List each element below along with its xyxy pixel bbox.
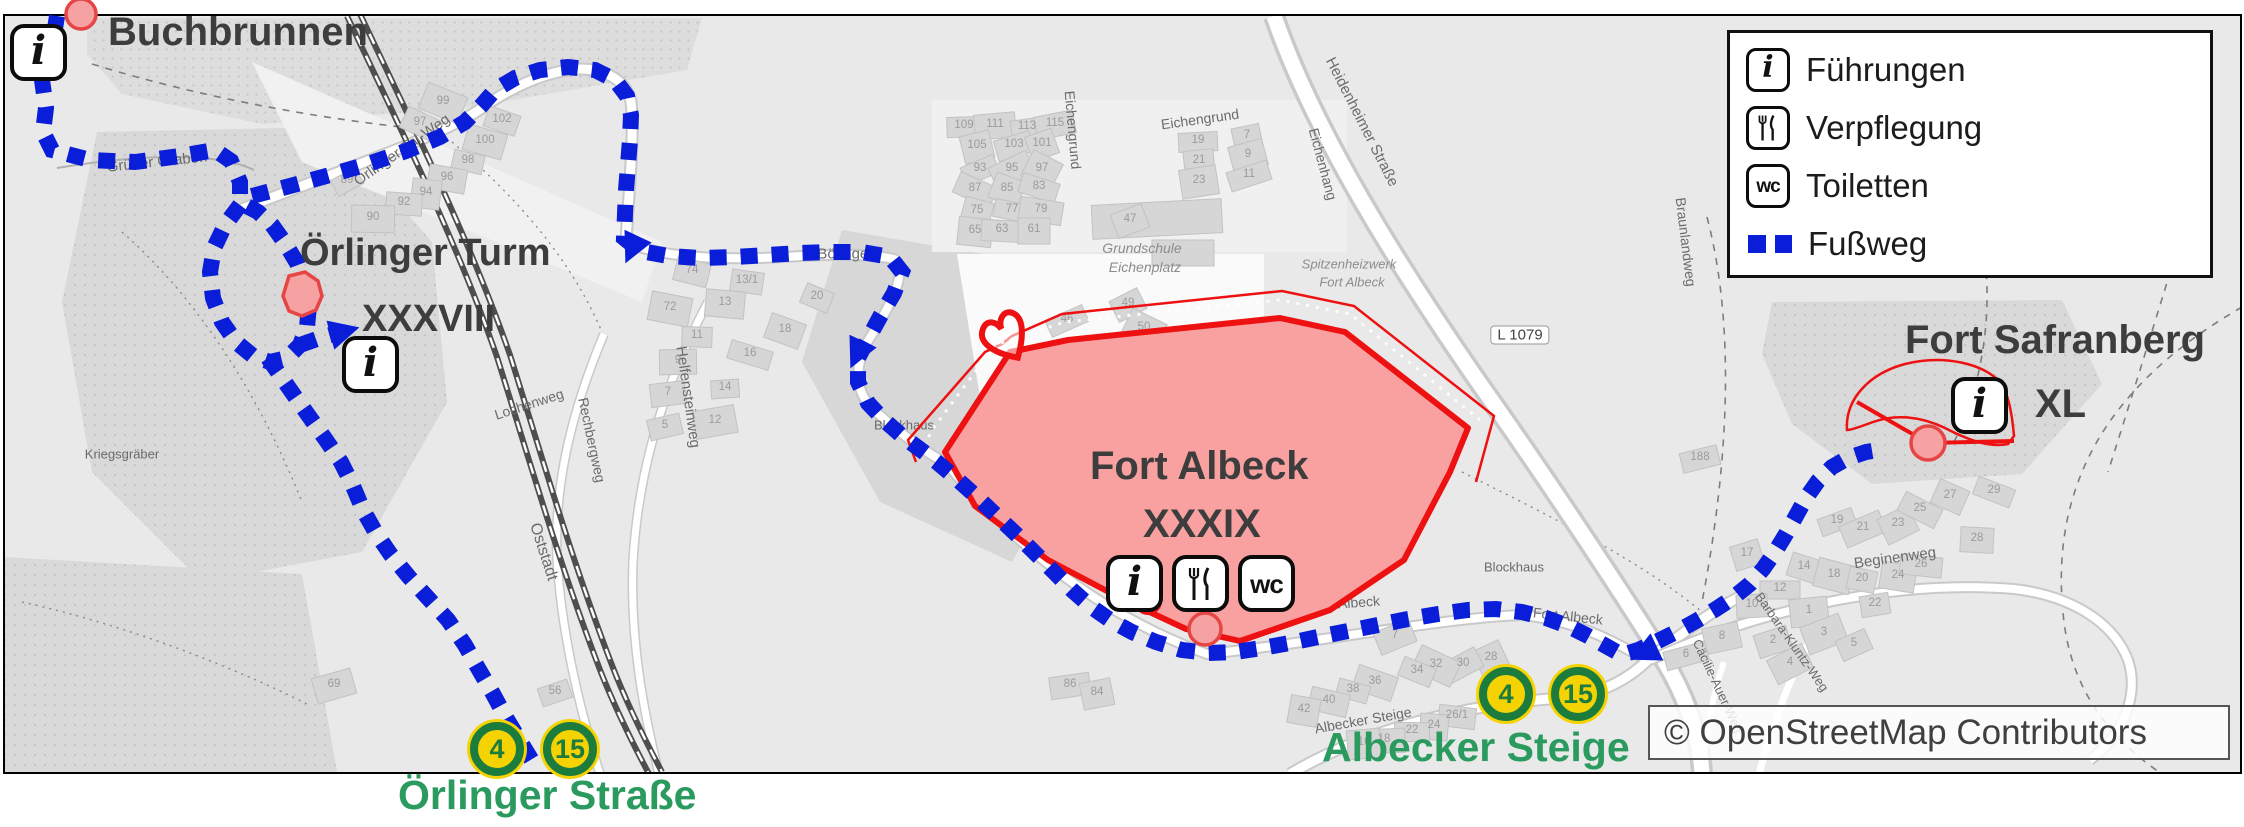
info-icon-glyph: i (1127, 562, 1142, 602)
house-number: 27 (1944, 489, 1957, 501)
info-icon: i (1746, 48, 1790, 92)
legend-label: Toiletten (1806, 167, 1929, 205)
restaurant-icon (1746, 106, 1790, 150)
house-number: 103 (1004, 138, 1023, 150)
house-number: 23 (1892, 517, 1905, 529)
bus-line-badge: 15 (543, 722, 597, 776)
wc-icon-glyph: wc (1250, 571, 1283, 597)
house-number: 24 (1892, 569, 1905, 581)
legend-row-fussweg: Fußweg (1746, 215, 2210, 273)
house-number: 5 (662, 419, 668, 431)
house-number: 5 (1851, 637, 1857, 649)
house-number: 34 (1411, 664, 1424, 676)
house-number: 4 (1787, 656, 1793, 668)
house-number: 14 (719, 381, 732, 393)
poi-numeral-fort-safranberg: XL (2035, 382, 2086, 427)
house-number: 95 (1006, 162, 1019, 174)
house-number: 7 (665, 386, 671, 398)
restaurant-icon (1172, 555, 1229, 612)
restaurant-icon-glyph (1183, 566, 1219, 602)
bus-line-badge: 15 (1551, 667, 1605, 721)
house-number: 13 (719, 296, 732, 308)
house-number: 6 (1683, 648, 1689, 660)
house-number: 20 (811, 290, 824, 302)
house-number: 100 (475, 134, 494, 146)
house-number: 14 (1798, 560, 1811, 572)
house-number: 26 (1915, 558, 1928, 570)
info-icon: i (1106, 555, 1163, 612)
house-number: 8 (1719, 630, 1725, 642)
footpath-swatch (1748, 235, 1792, 253)
house-number: 111 (986, 118, 1003, 130)
house-number: 46 (1061, 313, 1074, 325)
legend-row-toiletten: wc Toiletten (1746, 157, 2210, 215)
info-icon-glyph: i (31, 31, 46, 71)
house-number: 115 (1046, 117, 1064, 129)
house-number: 102 (492, 113, 511, 125)
info-icon-glyph: i (1762, 53, 1773, 83)
bus-line-badge: 4 (470, 722, 524, 776)
house-number: 87 (969, 182, 982, 194)
house-number: 98 (462, 154, 475, 166)
house-number: 83 (1033, 180, 1046, 192)
house-number: 22 (1869, 597, 1882, 609)
house-number: 2 (1770, 634, 1776, 646)
footpath-dash (1748, 235, 1766, 253)
house-number: 21 (1857, 521, 1870, 533)
house-number: 61 (1028, 223, 1041, 235)
legend-row-fuehrungen: i Führungen (1746, 41, 2210, 99)
house-number: 16 (744, 347, 757, 359)
house-number: 75 (971, 204, 984, 216)
bus-stop-name: Örlinger Straße (398, 772, 696, 819)
house-number: 89 (341, 174, 354, 186)
house-number: 13/1 (736, 274, 758, 286)
house-number: 32 (1430, 658, 1443, 670)
house-number: 3 (1821, 626, 1827, 638)
footpath-dash (1775, 235, 1793, 253)
house-number: 29 (1988, 484, 2001, 496)
legend-label: Verpflegung (1806, 109, 1982, 147)
house-number: 23 (1193, 174, 1206, 186)
house-number: 96 (441, 171, 454, 183)
house-number: 94 (420, 186, 433, 198)
poi-title-oerlinger-turm: Örlinger Turm (300, 232, 551, 275)
attribution: © OpenStreetMap Contributors (1648, 705, 2230, 760)
house-number: 105 (967, 139, 986, 151)
house-number: 69 (328, 678, 341, 690)
house-number: 21 (1193, 154, 1206, 166)
house-number: 92 (398, 196, 411, 208)
house-number: 9 (675, 354, 681, 366)
house-number: 49 (1122, 297, 1135, 309)
wc-icon-glyph: wc (1756, 177, 1779, 196)
house-number: 30 (1457, 657, 1470, 669)
legend: i Führungen Verpflegung (1727, 30, 2213, 278)
house-number: 90 (367, 211, 380, 223)
house-number: 77 (1006, 203, 1019, 215)
poi-numeral-fort-albeck: XXXIX (1143, 502, 1261, 547)
house-number: 65 (969, 224, 982, 236)
house-number: 38 (1347, 683, 1360, 695)
house-number: 7 (1392, 629, 1398, 641)
map: Grüner GrabenÖrlinger-Tal-WegOststadtHel… (0, 0, 2244, 827)
house-number: 40 (1323, 694, 1336, 706)
house-number: 19 (1192, 134, 1205, 146)
wc-icon: wc (1238, 555, 1295, 612)
house-number: 28 (1971, 532, 1984, 544)
house-number: 85 (1001, 182, 1014, 194)
house-number: 109 (954, 119, 973, 131)
house-number: 18 (1828, 568, 1841, 580)
house-number: 10 (1746, 598, 1759, 610)
poi-title-fort-albeck: Fort Albeck (1090, 444, 1309, 489)
house-number: 28 (1485, 651, 1498, 663)
house-number: 97 (1036, 162, 1049, 174)
legend-label: Fußweg (1808, 225, 1927, 263)
house-number: 84 (1091, 686, 1104, 698)
house-number: 93 (974, 162, 987, 174)
info-icon: i (1951, 377, 2008, 434)
house-number: 25 (1914, 502, 1927, 514)
house-number: 86 (1064, 678, 1077, 690)
house-number: 188 (1690, 451, 1709, 463)
legend-row-verpflegung: Verpflegung (1746, 99, 2210, 157)
info-icon-glyph: i (363, 343, 378, 383)
house-number: 99 (437, 95, 450, 107)
restaurant-icon-glyph (1754, 114, 1782, 142)
house-number: 9 (1245, 148, 1251, 160)
info-icon: i (342, 336, 399, 393)
info-icon-glyph: i (1972, 384, 1987, 424)
house-number: 7 (1244, 129, 1250, 141)
poi-numeral-oerlinger-turm: XXXVIII (362, 298, 495, 341)
house-number: 26/1 (1446, 709, 1468, 721)
house-number: 97 (414, 116, 427, 128)
house-number: 1 (1806, 604, 1812, 616)
house-number: 11 (691, 329, 703, 341)
house-number: 12 (709, 414, 722, 426)
poi-title-fort-safranberg: Fort Safranberg (1905, 318, 2205, 363)
house-number: 11 (1243, 168, 1255, 180)
bus-stop-name: Albecker Steige (1322, 724, 1630, 771)
house-number: 63 (996, 223, 1009, 235)
house-number: 42 (1298, 703, 1311, 715)
house-number: 50 (1138, 321, 1151, 333)
house-number: 47 (1124, 213, 1137, 225)
house-number: 56 (549, 685, 562, 697)
info-icon: i (10, 24, 67, 81)
poi-title-buchbrunnen: Buchbrunnen (108, 10, 368, 55)
house-number: 20 (1856, 572, 1869, 584)
house-number: 79 (1035, 203, 1048, 215)
house-number: 17 (1741, 547, 1754, 559)
house-number: 12 (1774, 582, 1787, 594)
house-number: 18 (779, 323, 792, 335)
wc-icon: wc (1746, 164, 1790, 208)
house-number: 74 (686, 264, 699, 276)
house-number: 101 (1032, 137, 1051, 149)
house-number: 36 (1369, 675, 1382, 687)
legend-label: Führungen (1806, 51, 1966, 89)
bus-line-badge: 4 (1479, 667, 1533, 721)
house-number: 19 (1831, 514, 1844, 526)
house-number: 113 (1018, 120, 1036, 132)
house-number: 72 (664, 301, 677, 313)
